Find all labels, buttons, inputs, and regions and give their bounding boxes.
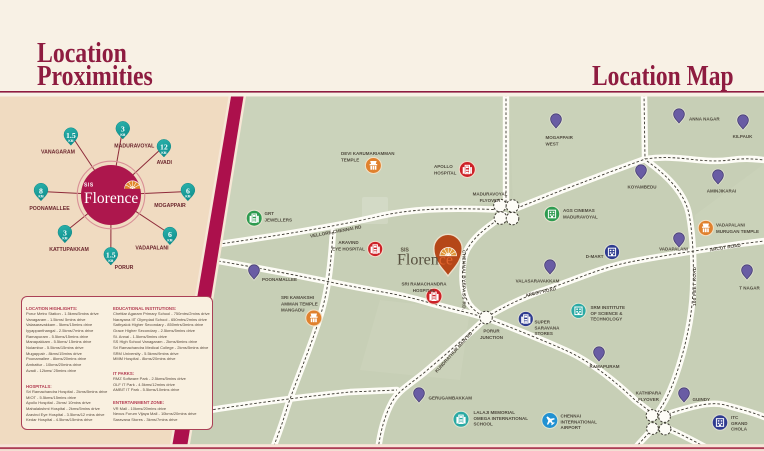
svg-text:MURUGAN TEMPLE: MURUGAN TEMPLE <box>716 229 759 234</box>
svg-text:D-MART: D-MART <box>586 254 604 259</box>
svg-text:EYE HOSPITAL: EYE HOSPITAL <box>332 246 365 251</box>
svg-text:KOYAMBEDU: KOYAMBEDU <box>627 185 656 190</box>
svg-text:GUINDY: GUINDY <box>693 397 711 402</box>
svg-text:MOGAPPAIR: MOGAPPAIR <box>546 135 574 140</box>
svg-text:PORUR: PORUR <box>483 329 500 334</box>
svg-text:APOLLO: APOLLO <box>434 164 453 169</box>
svg-text:KILPAUK: KILPAUK <box>733 134 753 139</box>
svg-text:ARAVIND: ARAVIND <box>338 240 359 245</box>
svg-text:AGS CINEMAS: AGS CINEMAS <box>563 208 595 213</box>
svg-text:HOSPITAL: HOSPITAL <box>413 288 436 293</box>
svg-text:100 FEET ROAD: 100 FEET ROAD <box>692 266 697 306</box>
svg-text:Florence: Florence <box>397 252 453 269</box>
svg-text:AVADI: AVADI <box>157 160 173 166</box>
svg-text:MADURAVOYAL: MADURAVOYAL <box>114 144 155 150</box>
svg-text:SRM INSTITUTE: SRM INSTITUTE <box>591 305 626 310</box>
svg-text:SARAVANA: SARAVANA <box>535 325 561 330</box>
svg-text:OMEGA INTERNATIONAL: OMEGA INTERNATIONAL <box>474 416 529 421</box>
svg-text:KM: KM <box>108 259 113 263</box>
svg-text:VANAGARAM: VANAGARAM <box>41 150 75 156</box>
svg-text:VADAPALANI: VADAPALANI <box>135 246 169 252</box>
svg-text:AIRPORT: AIRPORT <box>561 425 582 430</box>
svg-text:KM: KM <box>120 133 125 137</box>
svg-text:LALAJI MEMORIAL: LALAJI MEMORIAL <box>474 410 516 415</box>
svg-text:MADURAVOYAL: MADURAVOYAL <box>473 192 508 197</box>
svg-text:Florence: Florence <box>84 190 138 207</box>
svg-text:CHENNAI: CHENNAI <box>561 414 582 419</box>
svg-text:AMINJIKARAI: AMINJIKARAI <box>707 189 737 194</box>
svg-text:ITC: ITC <box>731 415 739 420</box>
svg-text:KM: KM <box>68 139 73 143</box>
svg-text:POONAMALLEE: POONAMALLEE <box>29 206 70 212</box>
svg-text:KM: KM <box>185 195 190 199</box>
svg-text:VALASARAVAKKAM: VALASARAVAKKAM <box>516 279 560 284</box>
svg-text:SIS: SIS <box>84 183 94 189</box>
svg-text:VADAPALANI: VADAPALANI <box>659 247 688 252</box>
svg-text:JUNCTION: JUNCTION <box>480 335 503 340</box>
svg-text:OF SCIENCE &: OF SCIENCE & <box>591 311 624 316</box>
svg-text:STORES: STORES <box>535 331 553 336</box>
svg-text:VADAPALANI: VADAPALANI <box>716 223 745 228</box>
svg-text:FLYOVER: FLYOVER <box>480 198 502 203</box>
svg-text:HOSPITAL: HOSPITAL <box>434 171 457 176</box>
svg-text:KM: KM <box>167 239 172 243</box>
svg-text:POONAMALLEE: POONAMALLEE <box>262 277 297 282</box>
svg-text:JEWELLERS: JEWELLERS <box>265 217 293 222</box>
svg-text:GERUGAMBAKKAM: GERUGAMBAKKAM <box>429 396 473 401</box>
svg-text:KM: KM <box>62 237 67 241</box>
svg-text:INTERNATIONAL: INTERNATIONAL <box>561 419 598 424</box>
svg-text:MANGADU: MANGADU <box>281 308 305 313</box>
svg-text:SRI RAMACHANDRA: SRI RAMACHANDRA <box>402 282 448 287</box>
svg-text:KATHIPARA: KATHIPARA <box>636 391 663 396</box>
svg-text:KM: KM <box>161 151 166 155</box>
svg-text:MADURAVOYAL: MADURAVOYAL <box>563 214 598 219</box>
svg-text:AMMAN TEMPLE: AMMAN TEMPLE <box>281 301 318 306</box>
svg-text:ANNA NAGAR: ANNA NAGAR <box>689 117 720 122</box>
svg-text:KM: KM <box>39 195 44 199</box>
svg-text:SRI KAMAKSHI: SRI KAMAKSHI <box>281 295 314 300</box>
svg-text:DEVI KARUMARIAMMAN: DEVI KARUMARIAMMAN <box>341 151 395 156</box>
svg-text:KATTUPAKKAM: KATTUPAKKAM <box>49 247 89 253</box>
svg-text:GRAND: GRAND <box>731 421 748 426</box>
svg-text:SCHOOL: SCHOOL <box>474 422 494 427</box>
svg-text:SUPER: SUPER <box>535 320 551 325</box>
svg-text:WEST: WEST <box>546 141 559 146</box>
svg-text:PORUR: PORUR <box>115 265 134 271</box>
svg-text:TECHNOLOGY: TECHNOLOGY <box>591 317 623 322</box>
svg-text:FLYOVER: FLYOVER <box>638 397 660 402</box>
svg-text:TEMPLE: TEMPLE <box>341 157 359 162</box>
svg-text:GRT: GRT <box>265 211 275 216</box>
svg-text:CHOLA: CHOLA <box>731 427 748 432</box>
svg-text:RAMAPURAM: RAMAPURAM <box>590 364 620 369</box>
svg-text:CHENNAI BYEPASS RD.: CHENNAI BYEPASS RD. <box>462 250 467 311</box>
svg-text:MOGAPPAIR: MOGAPPAIR <box>154 203 186 209</box>
svg-text:T NAGAR: T NAGAR <box>739 286 760 291</box>
